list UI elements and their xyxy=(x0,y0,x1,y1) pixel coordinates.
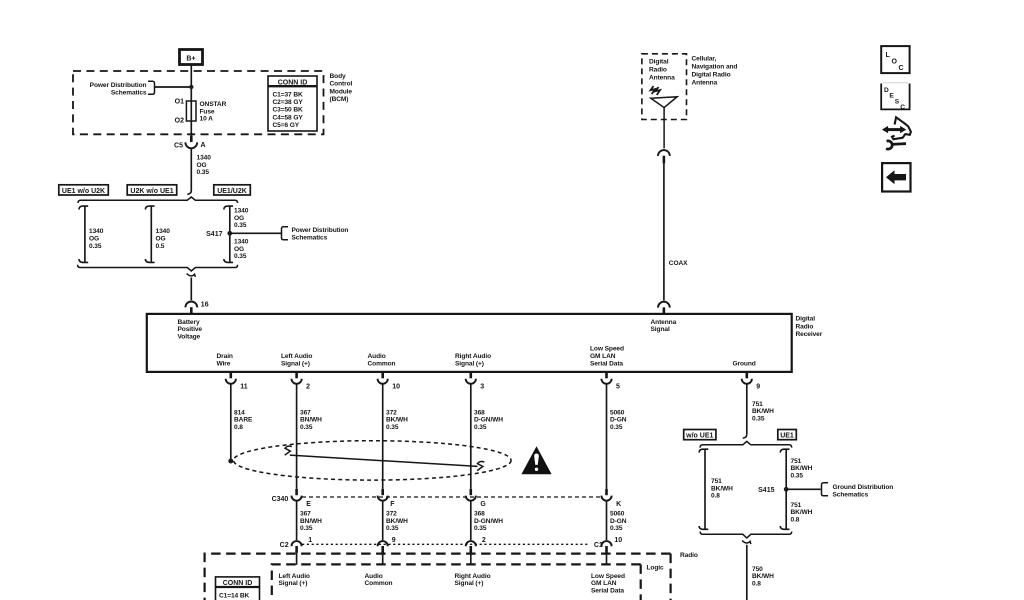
svg-text:G: G xyxy=(480,501,486,508)
svg-text:OG: OG xyxy=(197,162,207,169)
svg-text:0.35: 0.35 xyxy=(610,424,623,431)
svg-text:1340: 1340 xyxy=(89,228,104,235)
svg-text:367: 367 xyxy=(300,409,311,416)
svg-text:S417: S417 xyxy=(206,231,222,238)
svg-text:OG: OG xyxy=(234,246,244,253)
svg-text:C2: C2 xyxy=(280,542,289,549)
svg-text:(BCM): (BCM) xyxy=(330,96,349,103)
svg-text:BN/WH: BN/WH xyxy=(300,417,322,424)
svg-text:Receiver: Receiver xyxy=(796,331,823,338)
svg-text:0.35: 0.35 xyxy=(386,525,399,532)
svg-text:GM LAN: GM LAN xyxy=(590,353,616,360)
svg-text:L: L xyxy=(886,52,891,59)
svg-text:1340: 1340 xyxy=(234,208,249,215)
svg-text:Radio: Radio xyxy=(796,323,814,330)
svg-text:9: 9 xyxy=(756,383,760,390)
svg-text:814: 814 xyxy=(234,409,245,416)
svg-text:5060: 5060 xyxy=(610,511,625,518)
svg-text:11: 11 xyxy=(240,383,248,390)
svg-text:Body: Body xyxy=(330,73,347,80)
svg-text:Positive: Positive xyxy=(178,326,203,333)
svg-text:CONN ID: CONN ID xyxy=(278,79,308,86)
svg-text:Schematics: Schematics xyxy=(833,492,869,499)
svg-text:372: 372 xyxy=(386,511,397,518)
svg-text:Signal (+): Signal (+) xyxy=(455,580,484,587)
svg-text:Audio: Audio xyxy=(368,353,386,360)
svg-text:1340: 1340 xyxy=(197,155,212,162)
svg-text:Serial Data: Serial Data xyxy=(590,360,623,367)
svg-text:C: C xyxy=(900,104,905,111)
svg-text:Fuse: Fuse xyxy=(200,108,215,115)
svg-text:OG: OG xyxy=(234,215,244,222)
svg-text:Digital Radio: Digital Radio xyxy=(692,71,731,78)
svg-text:0.8: 0.8 xyxy=(234,424,243,431)
svg-text:0.35: 0.35 xyxy=(474,525,487,532)
svg-text:BK/WH: BK/WH xyxy=(386,417,408,424)
svg-text:Schematics: Schematics xyxy=(292,235,328,242)
svg-text:9: 9 xyxy=(392,537,396,544)
svg-text:Left Audio: Left Audio xyxy=(281,353,312,360)
svg-text:Drain: Drain xyxy=(217,353,233,360)
svg-text:751: 751 xyxy=(752,401,763,408)
svg-text:COAX: COAX xyxy=(669,260,688,267)
svg-text:751: 751 xyxy=(791,458,802,465)
svg-text:C1: C1 xyxy=(594,542,603,549)
svg-text:UE1 w/o U2K: UE1 w/o U2K xyxy=(62,188,105,195)
svg-text:0.35: 0.35 xyxy=(752,415,765,422)
svg-text:Low Speed: Low Speed xyxy=(590,346,624,353)
svg-text:Low Speed: Low Speed xyxy=(591,573,625,580)
svg-text:Signal (+): Signal (+) xyxy=(281,360,310,367)
svg-text:Right Audio: Right Audio xyxy=(455,353,491,360)
svg-text:E: E xyxy=(306,501,311,508)
svg-text:D-GN/WH: D-GN/WH xyxy=(474,417,503,424)
svg-text:367: 367 xyxy=(300,511,311,518)
svg-text:2: 2 xyxy=(482,537,486,544)
svg-text:B+: B+ xyxy=(186,56,195,63)
svg-text:C4=58 GY: C4=58 GY xyxy=(273,114,304,121)
svg-text:BK/WH: BK/WH xyxy=(752,408,774,415)
svg-text:Power Distribution: Power Distribution xyxy=(292,227,349,234)
svg-text:1340: 1340 xyxy=(156,228,171,235)
svg-text:Common: Common xyxy=(365,580,393,587)
svg-text:0.35: 0.35 xyxy=(610,525,623,532)
svg-text:Logic: Logic xyxy=(647,565,665,572)
svg-text:GM LAN: GM LAN xyxy=(591,580,617,587)
svg-text:U2K w/o UE1: U2K w/o UE1 xyxy=(130,188,173,195)
svg-text:0.35: 0.35 xyxy=(234,253,247,260)
svg-text:Control: Control xyxy=(330,81,353,88)
svg-text:F: F xyxy=(390,501,395,508)
svg-text:Cellular,: Cellular, xyxy=(692,55,717,62)
svg-text:0.35: 0.35 xyxy=(234,222,247,229)
svg-text:750: 750 xyxy=(752,566,763,573)
svg-text:0.35: 0.35 xyxy=(386,424,399,431)
svg-text:BK/WH: BK/WH xyxy=(752,573,774,580)
svg-text:0.35: 0.35 xyxy=(300,525,313,532)
svg-text:Ground: Ground xyxy=(733,360,756,367)
svg-text:BN/WH: BN/WH xyxy=(300,518,322,525)
svg-text:1340: 1340 xyxy=(234,239,249,246)
svg-text:UE1/U2K: UE1/U2K xyxy=(217,188,247,195)
svg-text:0.8: 0.8 xyxy=(711,493,720,500)
svg-text:BARE: BARE xyxy=(234,417,253,424)
svg-text:O2: O2 xyxy=(175,118,184,125)
svg-text:368: 368 xyxy=(474,511,485,518)
svg-text:Ground Distribution: Ground Distribution xyxy=(833,484,894,491)
svg-text:C1=37 BK: C1=37 BK xyxy=(273,91,304,98)
svg-text:Antenna: Antenna xyxy=(692,79,718,86)
svg-text:Wire: Wire xyxy=(217,360,231,367)
svg-text:0.35: 0.35 xyxy=(300,424,313,431)
svg-text:BK/WH: BK/WH xyxy=(386,518,408,525)
svg-text:5: 5 xyxy=(616,383,620,390)
svg-text:Right Audio: Right Audio xyxy=(455,573,491,580)
svg-text:UE1: UE1 xyxy=(780,433,794,440)
svg-text:BK/WH: BK/WH xyxy=(711,485,733,492)
svg-text:0.35: 0.35 xyxy=(89,243,102,250)
svg-text:C2=38 GY: C2=38 GY xyxy=(273,99,304,106)
svg-text:Signal (+): Signal (+) xyxy=(455,360,484,367)
svg-text:10: 10 xyxy=(614,537,622,544)
svg-text:Voltage: Voltage xyxy=(178,333,201,340)
svg-text:S415: S415 xyxy=(758,487,774,494)
svg-text:E: E xyxy=(889,93,894,100)
svg-text:D-GN/WH: D-GN/WH xyxy=(474,518,503,525)
svg-text:O1: O1 xyxy=(175,98,184,105)
svg-text:Radio: Radio xyxy=(680,552,698,559)
svg-text:C340: C340 xyxy=(272,496,289,503)
svg-text:0.8: 0.8 xyxy=(752,581,761,588)
svg-text:Radio: Radio xyxy=(649,67,667,74)
svg-text:10 A: 10 A xyxy=(200,116,214,123)
svg-text:Schematics: Schematics xyxy=(111,90,147,97)
svg-text:D-GN: D-GN xyxy=(610,417,627,424)
svg-text:Battery: Battery xyxy=(178,319,200,326)
svg-text:O: O xyxy=(892,59,898,66)
svg-text:OG: OG xyxy=(156,236,166,243)
svg-text:S: S xyxy=(895,98,900,105)
svg-text:Power Distribution: Power Distribution xyxy=(90,82,147,89)
svg-text:0.35: 0.35 xyxy=(791,472,804,479)
svg-text:Signal: Signal xyxy=(651,326,670,333)
svg-text:10: 10 xyxy=(392,383,400,390)
svg-text:5060: 5060 xyxy=(610,409,625,416)
svg-text:Left Audio: Left Audio xyxy=(279,573,310,580)
svg-text:Common: Common xyxy=(368,360,396,367)
svg-text:Antenna: Antenna xyxy=(651,319,677,326)
svg-text:751: 751 xyxy=(791,502,802,509)
svg-text:w/o UE1: w/o UE1 xyxy=(685,433,713,440)
svg-text:C: C xyxy=(899,65,904,72)
svg-text:Signal (+): Signal (+) xyxy=(279,580,308,587)
svg-text:368: 368 xyxy=(474,409,485,416)
svg-text:Antenna: Antenna xyxy=(649,75,675,82)
svg-text:372: 372 xyxy=(386,409,397,416)
svg-text:0.35: 0.35 xyxy=(197,169,210,176)
svg-text:ONSTAR: ONSTAR xyxy=(200,101,227,108)
svg-text:0.5: 0.5 xyxy=(156,243,165,250)
svg-text:BK/WH: BK/WH xyxy=(791,509,813,516)
svg-text:OG: OG xyxy=(89,236,99,243)
svg-text:C5: C5 xyxy=(174,142,183,149)
svg-text:Digital: Digital xyxy=(796,316,816,323)
svg-text:2: 2 xyxy=(306,383,310,390)
svg-text:CONN ID: CONN ID xyxy=(223,580,253,587)
svg-text:0.35: 0.35 xyxy=(474,424,487,431)
svg-text:C3=50 BK: C3=50 BK xyxy=(273,107,304,114)
svg-text:Module: Module xyxy=(330,88,353,95)
svg-text:751: 751 xyxy=(711,478,722,485)
svg-text:BK/WH: BK/WH xyxy=(791,465,813,472)
svg-text:0.8: 0.8 xyxy=(791,516,800,523)
svg-text:D-GN: D-GN xyxy=(610,518,627,525)
svg-text:Audio: Audio xyxy=(365,573,383,580)
svg-text:Navigation and: Navigation and xyxy=(692,63,738,70)
svg-text:Serial Data: Serial Data xyxy=(591,588,624,595)
svg-text:C5=6 GY: C5=6 GY xyxy=(273,122,300,129)
svg-text:16: 16 xyxy=(201,301,209,308)
svg-text:Digital: Digital xyxy=(649,59,669,66)
svg-text:A: A xyxy=(201,142,206,149)
svg-text:C1=14 BK: C1=14 BK xyxy=(219,593,250,600)
svg-text:D: D xyxy=(884,87,889,94)
svg-text:3: 3 xyxy=(480,383,484,390)
svg-text:1: 1 xyxy=(308,537,312,544)
svg-text:K: K xyxy=(616,501,621,508)
